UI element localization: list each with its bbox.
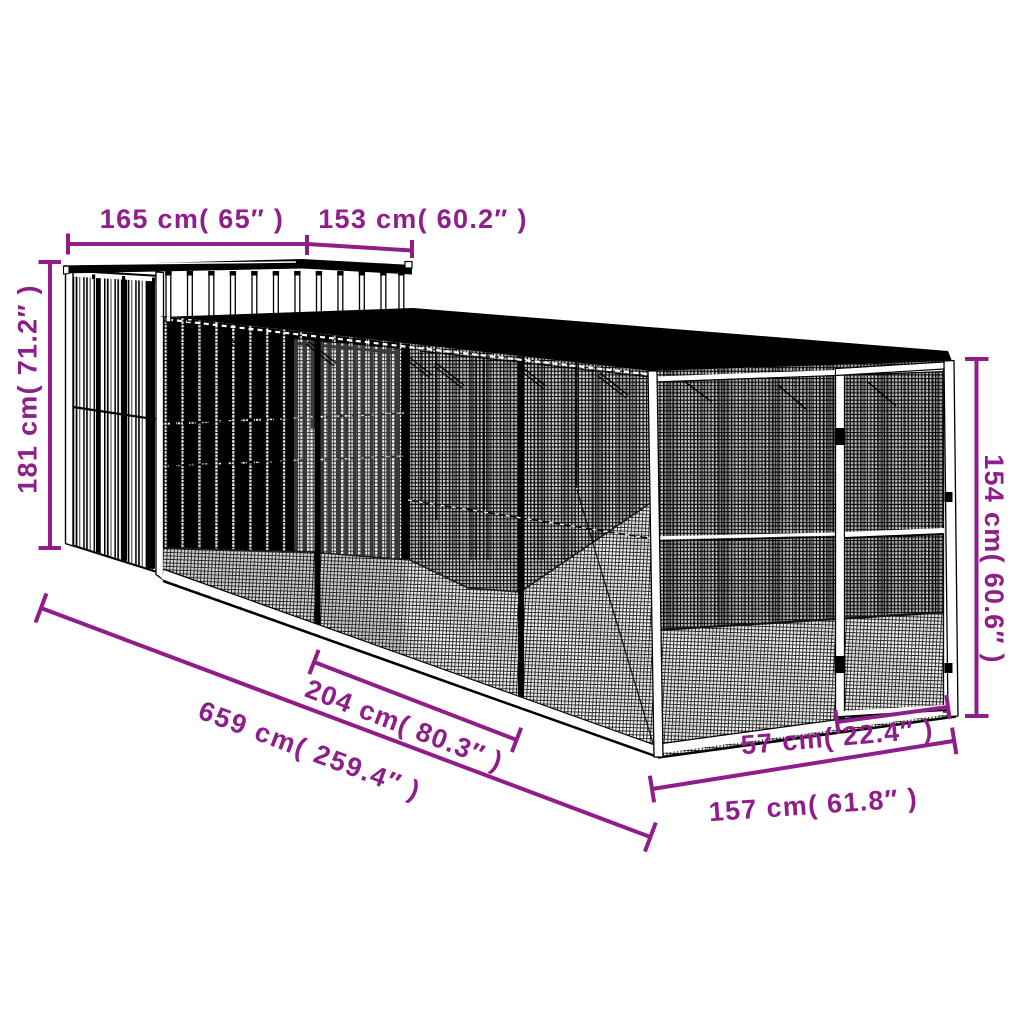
svg-text:154 cm( 60.6″ ): 154 cm( 60.6″ )	[979, 454, 1009, 664]
svg-text:165 cm( 65″ ): 165 cm( 65″ )	[100, 204, 284, 234]
svg-text:153 cm( 60.2″ ): 153 cm( 60.2″ )	[318, 204, 528, 234]
svg-text:181 cm( 71.2″ ): 181 cm( 71.2″ )	[13, 284, 43, 494]
